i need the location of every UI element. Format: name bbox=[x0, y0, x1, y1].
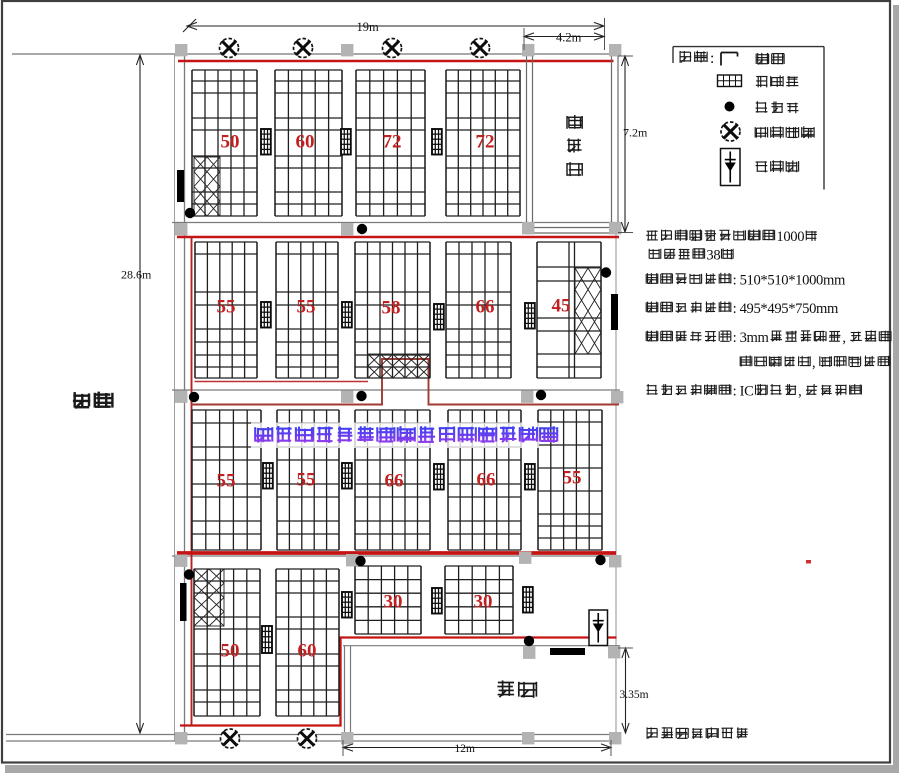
svg-text:,: , bbox=[798, 384, 801, 400]
svg-text:28.6m: 28.6m bbox=[121, 268, 152, 282]
svg-text:55: 55 bbox=[217, 297, 236, 318]
svg-text:58: 58 bbox=[382, 298, 401, 319]
svg-text:66: 66 bbox=[477, 470, 496, 491]
svg-text:55: 55 bbox=[563, 468, 582, 489]
svg-text:4.2m: 4.2m bbox=[556, 31, 582, 45]
svg-text:1000: 1000 bbox=[776, 229, 804, 245]
svg-text:3.35m: 3.35m bbox=[620, 689, 649, 701]
svg-text:,: , bbox=[842, 330, 845, 346]
svg-text:30: 30 bbox=[474, 592, 493, 613]
svg-text::: : bbox=[710, 50, 714, 67]
svg-text:60: 60 bbox=[296, 132, 315, 153]
svg-text:66: 66 bbox=[385, 471, 404, 492]
svg-text:7.2m: 7.2m bbox=[623, 126, 648, 140]
svg-text:,: , bbox=[812, 355, 815, 371]
svg-text:45: 45 bbox=[552, 296, 571, 317]
svg-text:72: 72 bbox=[476, 132, 495, 153]
svg-text:: IC: : IC bbox=[733, 384, 754, 400]
svg-text:55: 55 bbox=[297, 470, 316, 491]
svg-text:: 3mm: : 3mm bbox=[733, 330, 770, 346]
svg-text:55: 55 bbox=[297, 297, 316, 318]
svg-text:: 510*510*1000mm: : 510*510*1000mm bbox=[733, 273, 846, 289]
svg-text:12m: 12m bbox=[455, 743, 476, 755]
svg-text:: 495*495*750mm: : 495*495*750mm bbox=[733, 301, 839, 317]
svg-text:50: 50 bbox=[221, 641, 240, 662]
svg-text:60: 60 bbox=[298, 641, 317, 662]
svg-text:66: 66 bbox=[476, 297, 495, 318]
svg-text:50: 50 bbox=[221, 132, 240, 153]
svg-text:19m: 19m bbox=[357, 20, 380, 34]
svg-text:30: 30 bbox=[384, 592, 403, 613]
svg-text:72: 72 bbox=[383, 132, 402, 153]
svg-text:55: 55 bbox=[217, 471, 236, 492]
svg-text:38: 38 bbox=[706, 248, 720, 264]
